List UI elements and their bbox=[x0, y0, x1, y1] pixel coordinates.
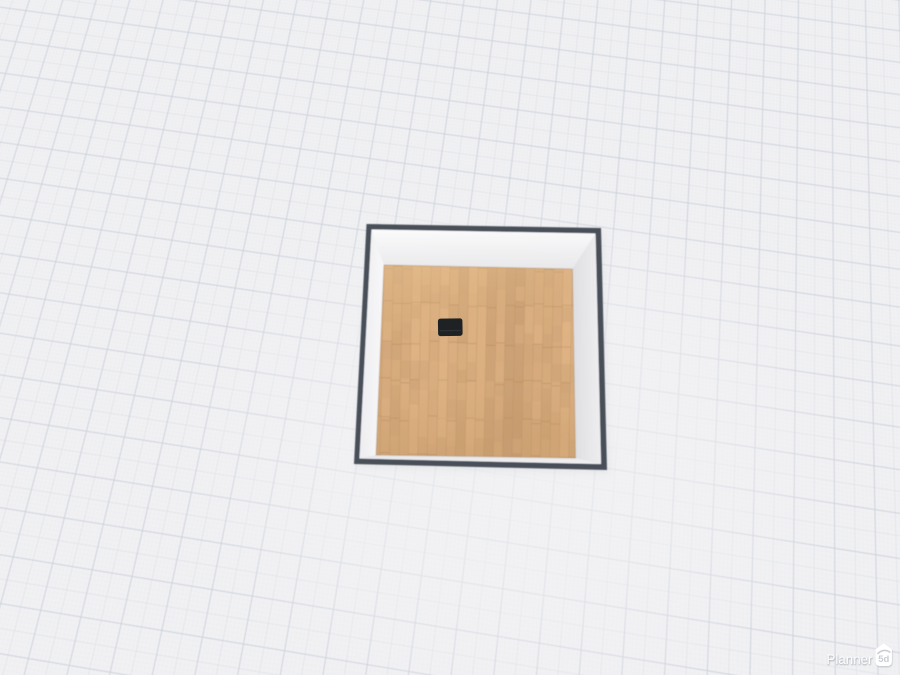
svg-text:Planner: Planner bbox=[827, 652, 874, 667]
svg-text:5d: 5d bbox=[878, 654, 889, 665]
